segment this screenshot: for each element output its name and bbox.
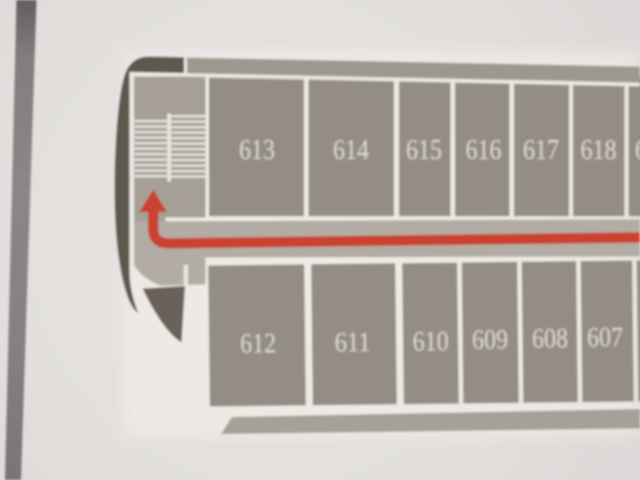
svg-text:619: 619: [635, 135, 640, 166]
svg-text:616: 616: [466, 135, 502, 166]
svg-text:612: 612: [240, 328, 276, 359]
svg-text:615: 615: [406, 135, 442, 166]
svg-text:613: 613: [239, 135, 275, 166]
svg-text:617: 617: [523, 135, 559, 166]
svg-text:609: 609: [472, 324, 508, 355]
svg-text:610: 610: [412, 326, 448, 357]
svg-text:611: 611: [334, 327, 370, 358]
svg-text:618: 618: [581, 135, 617, 166]
svg-text:608: 608: [532, 323, 568, 354]
svg-text:614: 614: [333, 135, 369, 166]
svg-text:607: 607: [587, 322, 623, 353]
